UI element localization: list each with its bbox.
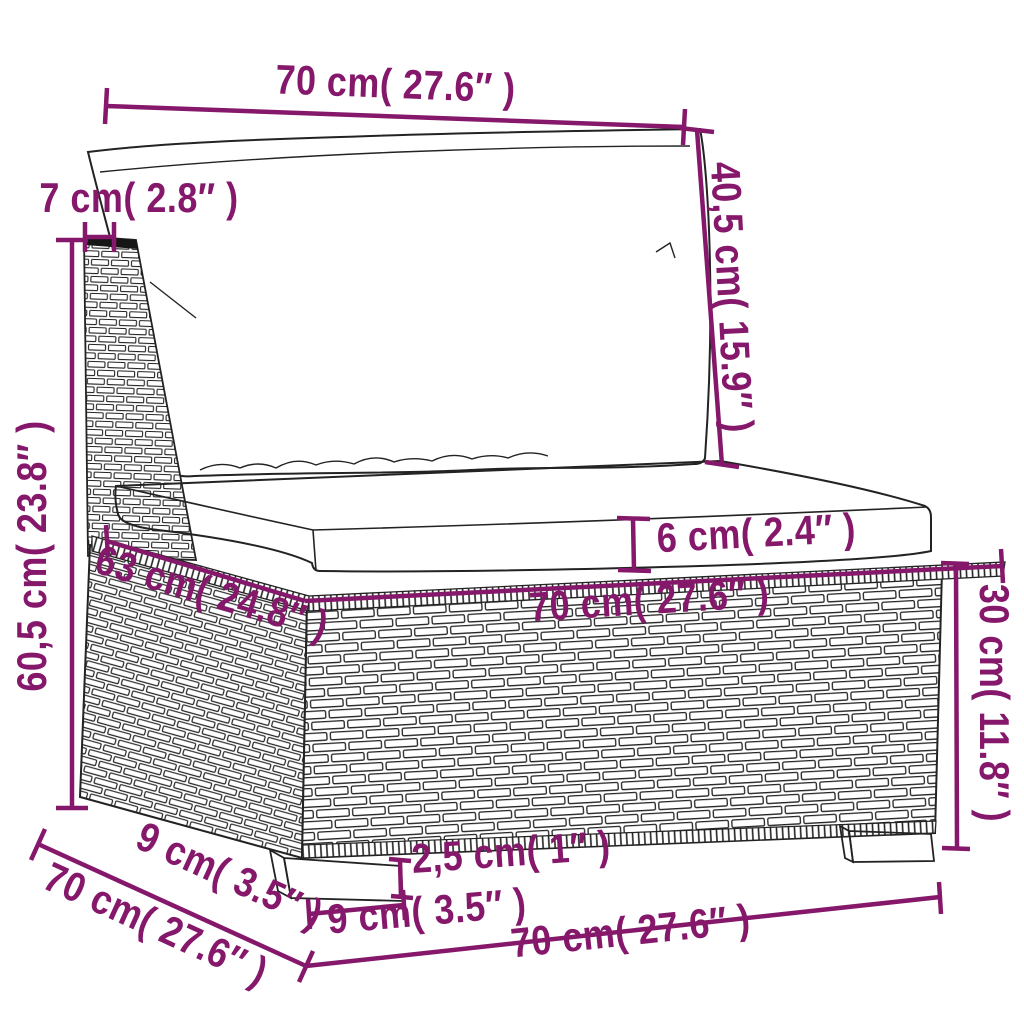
dim-label-leg-width: 9 cm( 3.5″ ) xyxy=(326,880,529,943)
dim-ticks-seat-width xyxy=(1001,549,1003,583)
seat-cushion-corner xyxy=(313,530,316,571)
dim-line-top-width xyxy=(106,106,684,127)
back-cushion-seam xyxy=(100,146,690,172)
back-panel-wicker xyxy=(84,236,196,560)
dim-line-cushion-thickness xyxy=(633,519,634,570)
dim-label-overall-height: 60,5 cm( 23.8″ ) xyxy=(10,420,56,691)
dim-label-cushion-thickness: 6 cm( 2.4″ ) xyxy=(656,506,857,562)
dim-label-back-cushion-height: 40,5 cm( 15.9″ ) xyxy=(701,161,761,434)
back-cushion-crease xyxy=(656,243,675,258)
dim-ticks-bottom-width xyxy=(939,882,941,914)
sofa-dimension-diagram: 70 cm( 27.6″ ) 40,5 cm( 15.9″ ) 7 cm( 2.… xyxy=(0,0,1024,1024)
dim-label-base-height: 30 cm( 11.8″ ) xyxy=(970,584,1016,822)
dim-label-back-thickness: 7 cm( 2.8″ ) xyxy=(39,176,238,222)
back-cushion-ruffles xyxy=(200,453,548,470)
dimension-diagram-page: 70 cm( 27.6″ ) 40,5 cm( 15.9″ ) 7 cm( 2.… xyxy=(0,0,1024,1024)
back-panel-crease xyxy=(150,282,196,318)
dim-label-bottom-width: 70 cm( 27.6″ ) xyxy=(509,896,753,967)
dim-line-base-height xyxy=(956,565,957,848)
dim-label-top-width: 70 cm( 27.6″ ) xyxy=(275,57,517,112)
back-panel xyxy=(84,236,196,560)
